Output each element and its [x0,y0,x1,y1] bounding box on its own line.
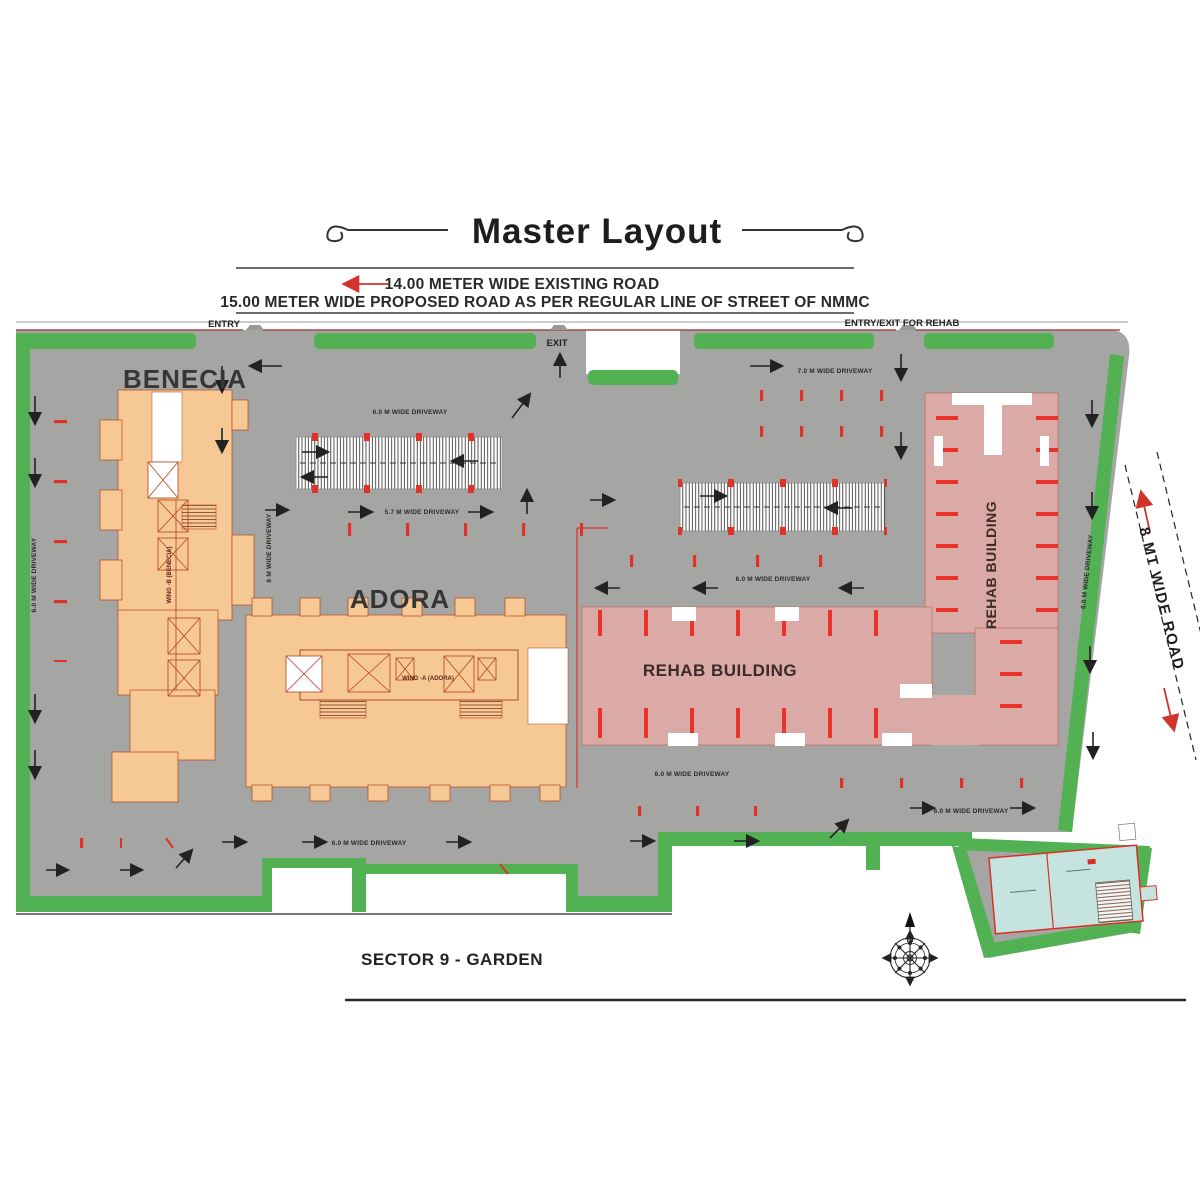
driveway-label-5: 6.0 M WIDE DRIVEWAY [934,808,1009,815]
driveway-label-4: 6.0 M WIDE DRIVEWAY [655,771,730,778]
driveway-label-8: 6 M WIDE DRIVEWAY [266,513,273,582]
road-note-2: 15.00 METER WIDE PROPOSED ROAD AS PER RE… [220,294,869,311]
driveway-label-3: 6.0 M WIDE DRIVEWAY [736,576,811,583]
amenity-building [987,822,1159,934]
side-road: 8 MT WIDE ROAD [1125,452,1200,762]
sector-label: SECTOR 9 - GARDEN [361,950,543,969]
compass-rose: N [883,912,937,985]
rehab-tower-label: REHAB BUILDING [983,501,999,629]
title-flourish-left [327,226,448,241]
road-direction-arrow-down [1164,688,1174,730]
parking-block-2 [678,479,887,535]
title-flourish-right [742,226,863,241]
rehab-main-label: REHAB BUILDING [643,661,797,680]
adora-wing-label: WING -A (ADORA) [402,676,454,682]
benecia-label: BENECIA [123,364,247,394]
boundary-notches [272,868,566,912]
driveway-label-0: 6.0 M WIDE DRIVEWAY [373,409,448,416]
exit-notch [586,326,680,385]
exit-label: EXIT [546,338,567,349]
adora-building: WING -A (ADORA) [246,598,568,801]
rehab-entry-label: ENTRY/EXIT FOR REHAB [845,318,960,329]
entry-label: ENTRY [208,319,241,330]
parking-block-1 [294,433,504,493]
header: Master Layout 14.00 METER WIDE EXISTING … [220,212,869,313]
benecia-wing-label: WING -B (BENECIA) [167,547,173,604]
page-title: Master Layout [472,212,722,251]
driveway-label-7: 6.0 M WIDE DRIVEWAY [31,537,38,612]
master-layout-plan: Master Layout 14.00 METER WIDE EXISTING … [0,0,1200,1200]
driveway-label-6: 6.0 M WIDE DRIVEWAY [332,840,407,847]
master-layout-page: Master Layout 14.00 METER WIDE EXISTING … [0,0,1200,1200]
adora-label: ADORA [350,584,450,614]
driveway-label-1: 7.0 M WIDE DRIVEWAY [798,368,873,375]
driveway-label-2: 5.7 M WIDE DRIVEWAY [385,509,460,516]
road-note-1: 14.00 METER WIDE EXISTING ROAD [385,276,660,293]
